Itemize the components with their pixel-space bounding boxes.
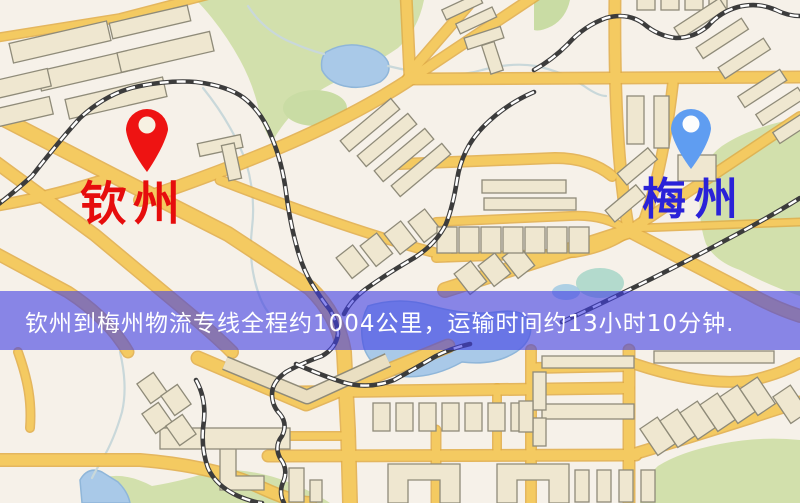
- origin-city-label: 钦州: [80, 181, 186, 228]
- destination-pin-hole: [683, 116, 700, 133]
- route-info-text: 钦州到梅州物流专线全程约1004公里，运输时间约13小时10分钟.: [0, 304, 734, 338]
- map-image: 钦州 梅州 钦州到梅州物流专线全程约1004公里，运输时间约13小时10分钟.: [0, 0, 800, 503]
- river-bottom-left: [80, 470, 130, 503]
- destination-city-label: 梅州: [642, 178, 746, 222]
- bracket-building: [388, 464, 460, 503]
- route-info-banner: 钦州到梅州物流专线全程约1004公里，运输时间约13小时10分钟.: [0, 291, 800, 350]
- park-top-right-small: [534, 0, 570, 31]
- origin-pin-hole: [139, 117, 156, 134]
- origin-pin: [126, 109, 168, 172]
- map-canvas: [0, 0, 800, 503]
